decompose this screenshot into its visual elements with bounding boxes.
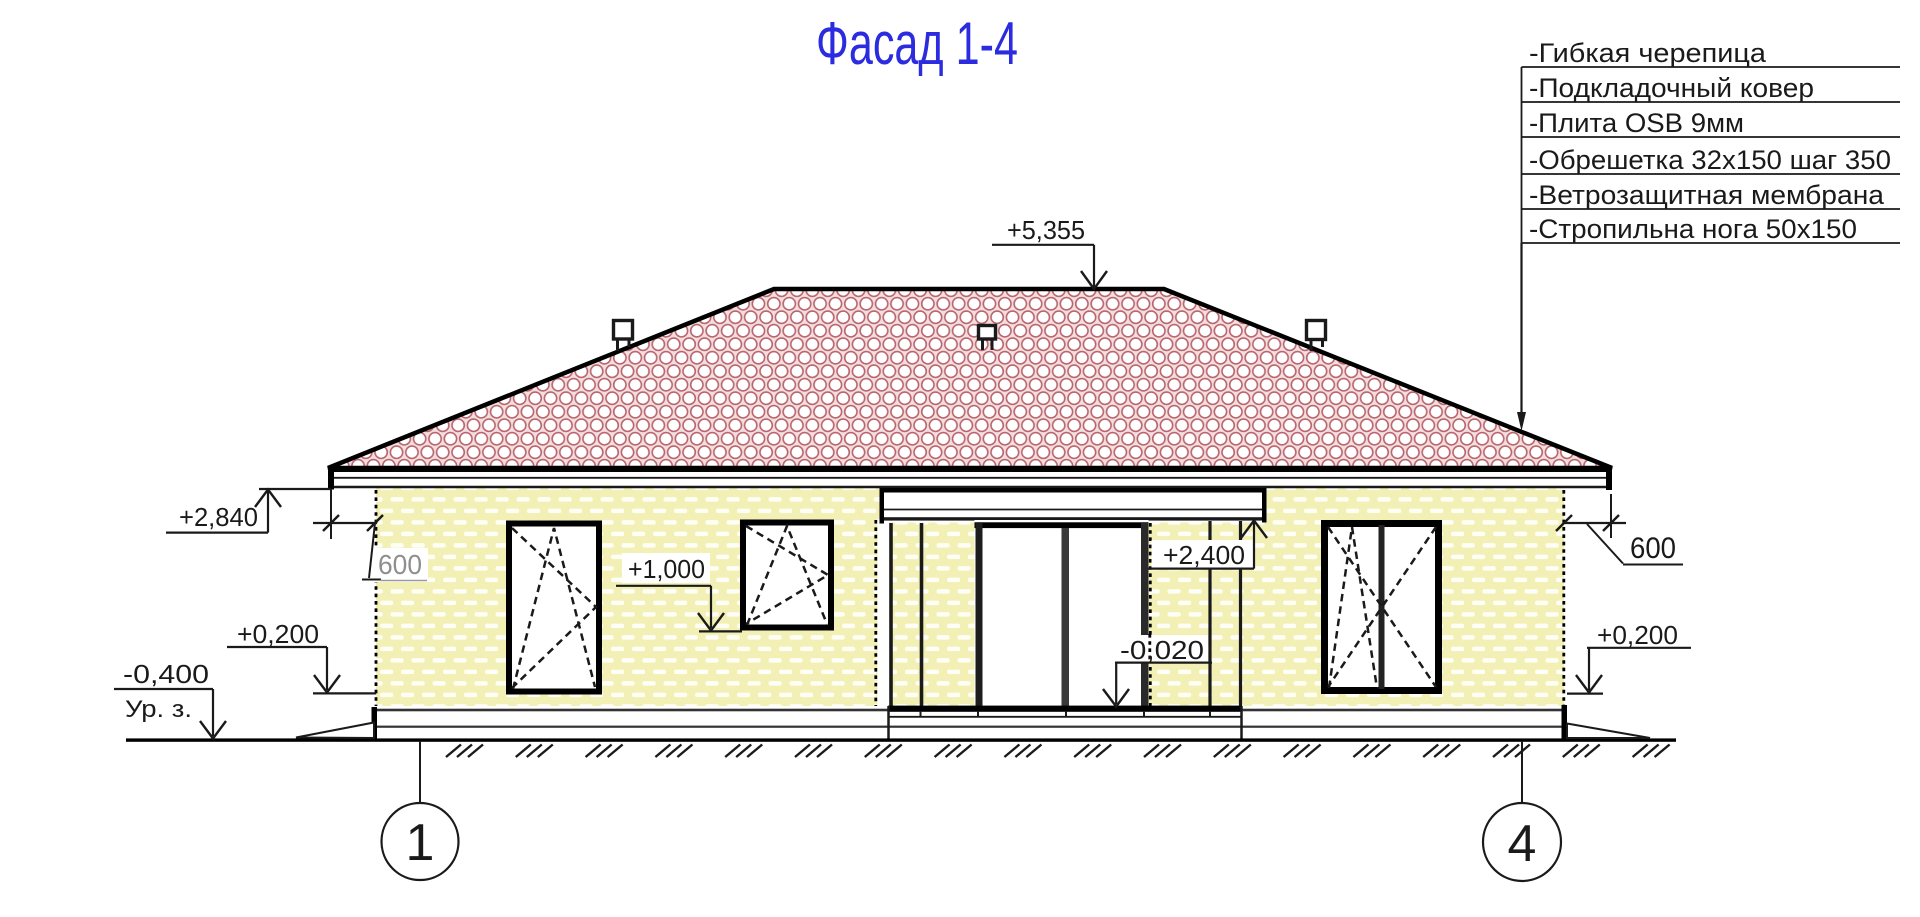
svg-text:+2,400: +2,400 — [1163, 540, 1245, 570]
svg-text:1: 1 — [406, 814, 435, 872]
svg-text:-Обрешетка 32х150 шаг 350: -Обрешетка 32х150 шаг 350 — [1529, 145, 1891, 175]
svg-text:+0,200: +0,200 — [1597, 620, 1678, 650]
svg-text:-Стропильна нога 50х150: -Стропильна нога 50х150 — [1529, 214, 1857, 244]
svg-text:-Ветрозащитная мембрана: -Ветрозащитная мембрана — [1529, 180, 1885, 210]
svg-text:+0,200: +0,200 — [237, 619, 319, 649]
svg-text:4: 4 — [1508, 815, 1537, 873]
svg-text:Ур. з.: Ур. з. — [125, 696, 192, 723]
svg-text:-0,020: -0,020 — [1120, 635, 1204, 665]
svg-text:-0,400: -0,400 — [123, 659, 209, 689]
svg-text:-Гибкая черепица: -Гибкая черепица — [1529, 38, 1767, 68]
svg-text:+1,000: +1,000 — [628, 554, 705, 584]
svg-text:-Плита OSB 9мм: -Плита OSB 9мм — [1529, 108, 1744, 138]
svg-text:+2,840: +2,840 — [179, 502, 258, 532]
svg-text:600: 600 — [378, 549, 422, 580]
svg-text:-Подкладочный ковер: -Подкладочный ковер — [1529, 73, 1814, 103]
svg-text:Фасад 1-4: Фасад 1-4 — [816, 10, 1018, 77]
svg-text:+5,355: +5,355 — [1007, 215, 1085, 245]
svg-text:600: 600 — [1630, 532, 1676, 565]
